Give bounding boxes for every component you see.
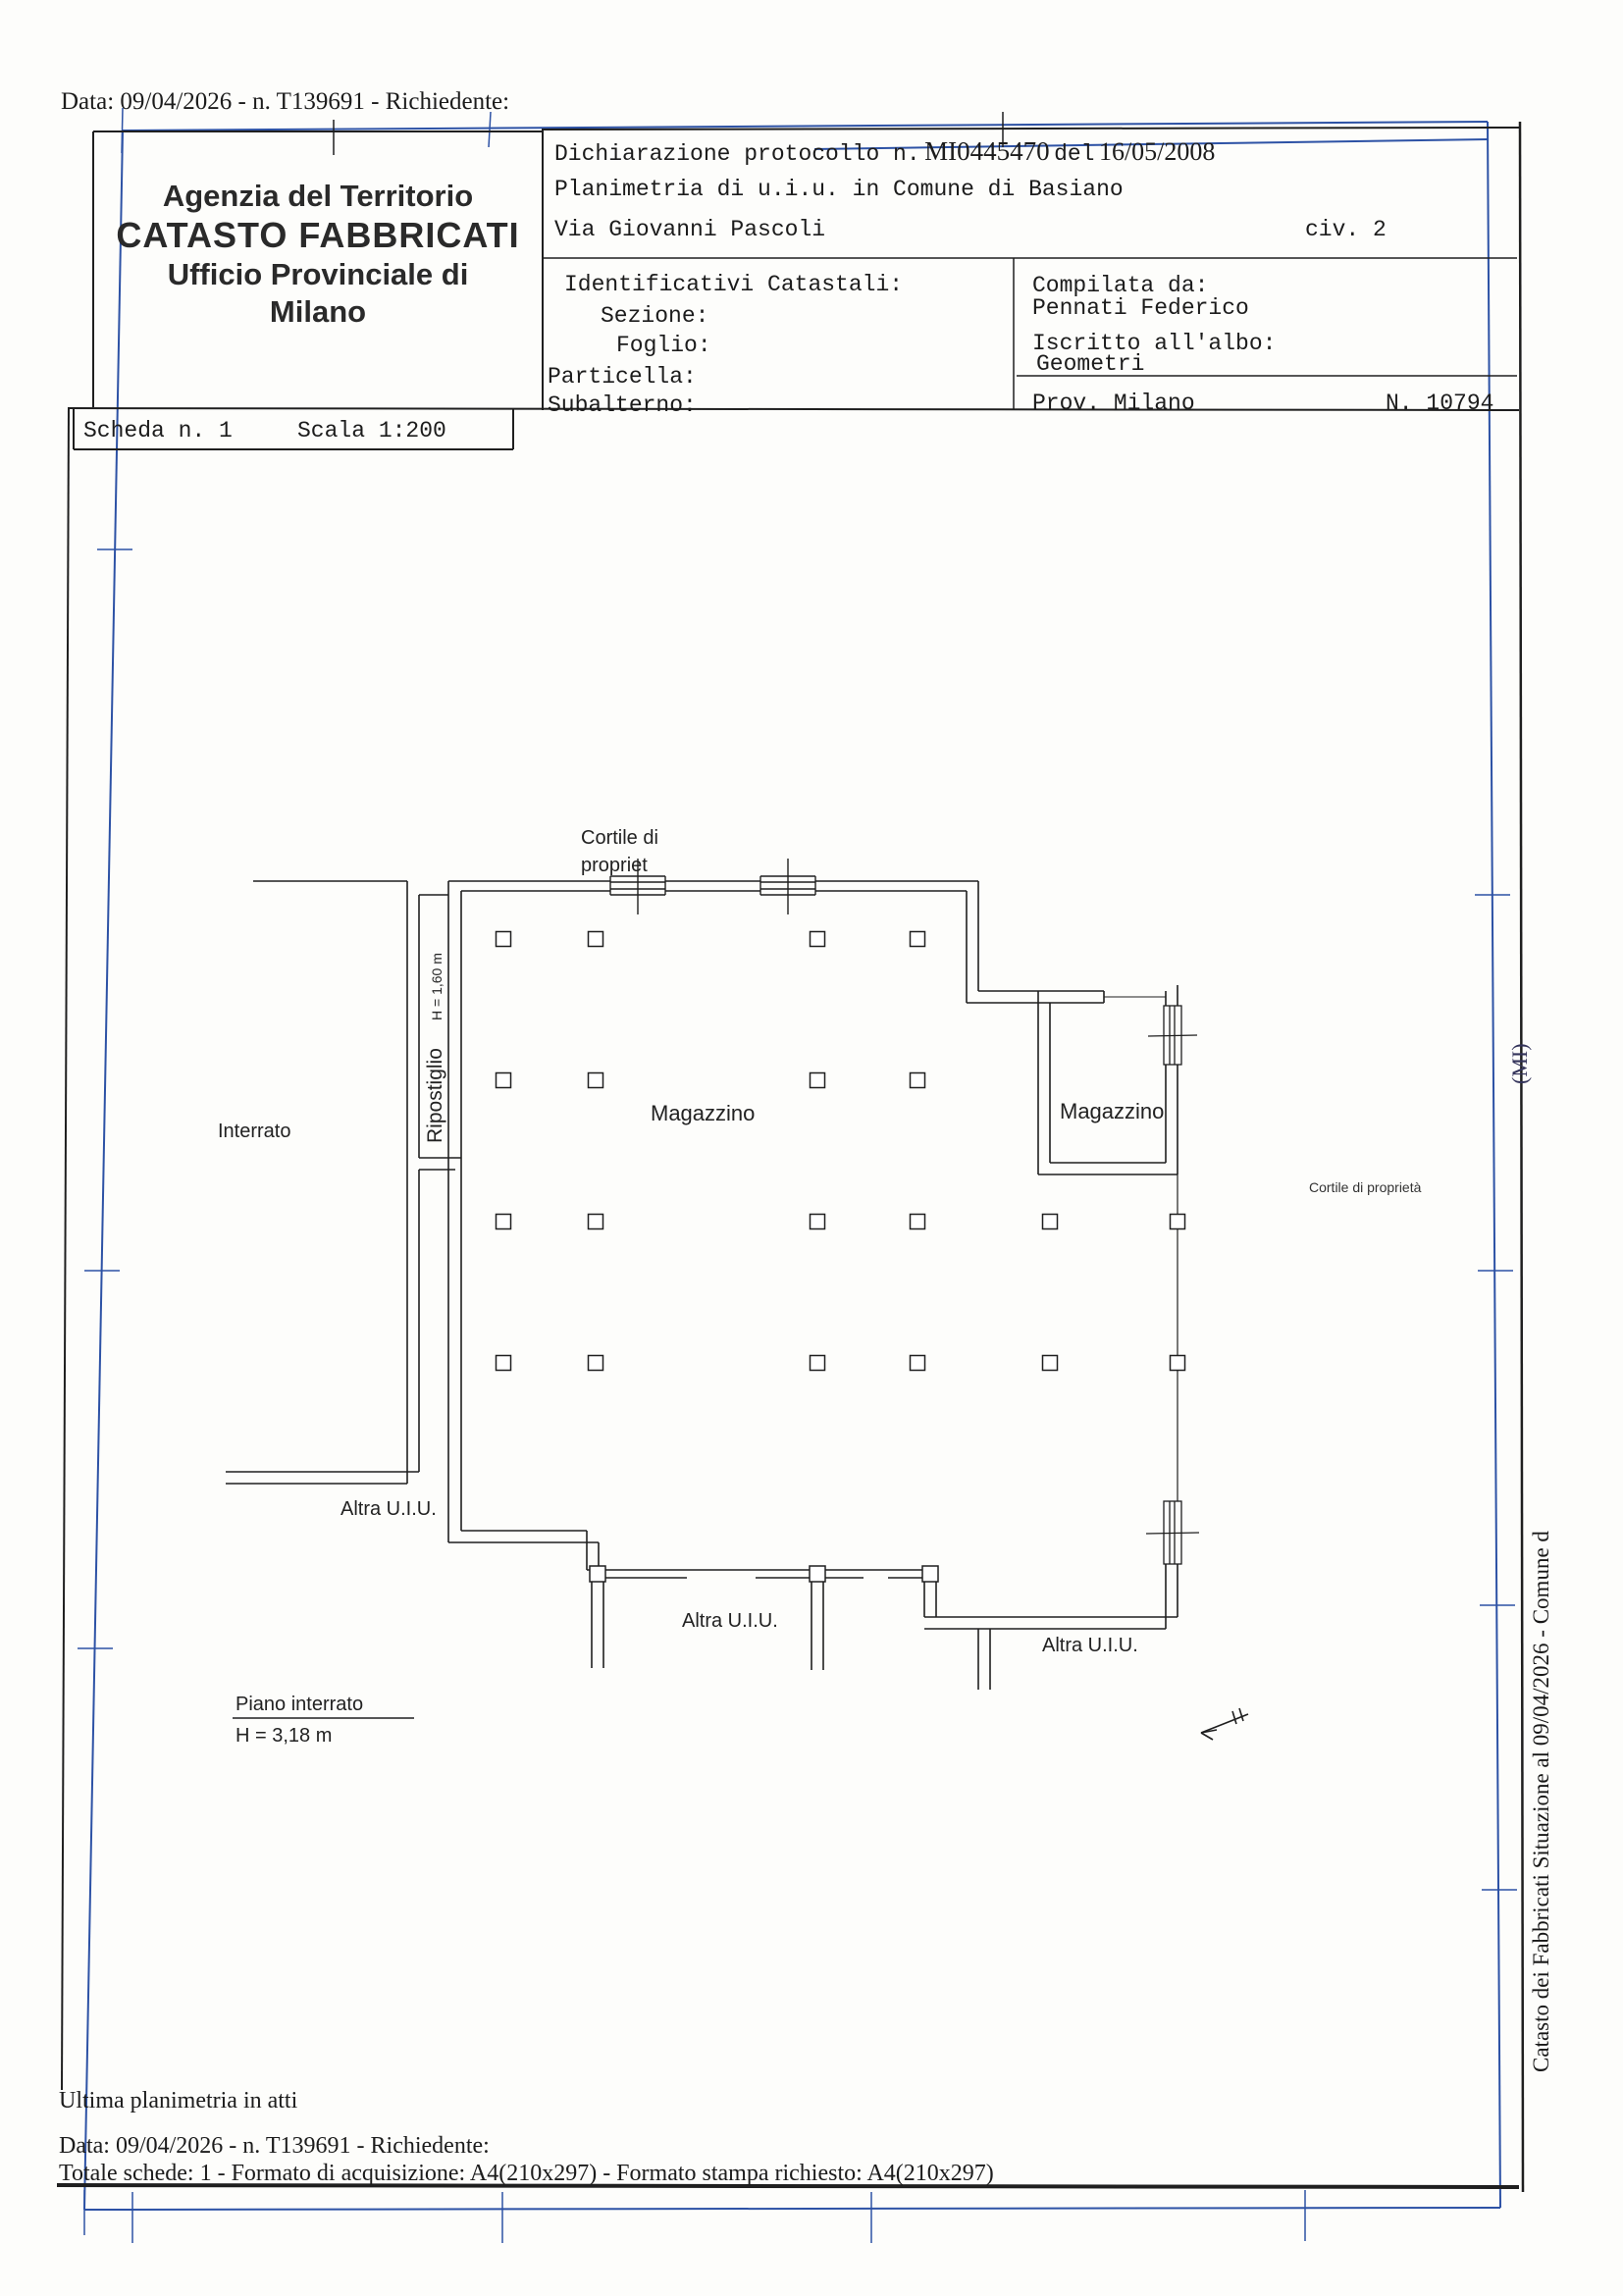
foglio-label: Foglio: xyxy=(616,333,711,358)
scheda-number: Scheda n. 1 xyxy=(83,418,233,444)
pillar-grid xyxy=(497,932,1185,1583)
identificativi-title: Identificativi Catastali: xyxy=(564,272,903,297)
provincial-office-label: Ufficio Provinciale di xyxy=(93,257,543,292)
altra-uiu-right-label: Altra U.I.U. xyxy=(1042,1635,1138,1657)
office-city: Milano xyxy=(93,294,543,330)
protocol-prefix: Dichiarazione protocollo n. xyxy=(554,141,920,167)
margin-vertical-text: Catasto dei Fabbricati Situazione al 09/… xyxy=(1529,1531,1554,2072)
albo-number: N. 10794 xyxy=(1386,391,1493,416)
black-frame xyxy=(57,112,1523,2192)
altra-uiu-left-label: Altra U.I.U. xyxy=(340,1498,437,1521)
footer-date-line: Data: 09/04/2026 - n. T139691 - Richiede… xyxy=(59,2133,490,2161)
albo-value: Geometri xyxy=(1036,351,1144,377)
cortile-top-label-line1: Cortile di xyxy=(581,827,658,850)
scala-value: Scala 1:200 xyxy=(297,418,446,444)
protocol-date: 16/05/2008 xyxy=(1099,137,1215,166)
catasto-title: CATASTO FABBRICATI xyxy=(93,215,543,255)
piano-height-label: H = 3,18 m xyxy=(236,1725,332,1748)
planimetria-line: Planimetria di u.i.u. in Comune di Basia… xyxy=(554,177,1124,202)
piano-interrato-label: Piano interrato xyxy=(236,1694,363,1716)
agency-name: Agenzia del Territorio xyxy=(93,179,543,214)
request-date-line: Data: 09/04/2026 - n. T139691 - Richiede… xyxy=(61,88,509,117)
cortile-right-label: Cortile di proprietà xyxy=(1309,1179,1421,1195)
footer-ultima-line: Ultima planimetria in atti xyxy=(59,2088,297,2115)
north-arrow-icon xyxy=(1201,1708,1248,1740)
scan-linework xyxy=(0,0,1623,2296)
subalterno-label: Subalterno: xyxy=(548,392,697,418)
protocol-del: del xyxy=(1054,141,1094,167)
civic-number: civ. 2 xyxy=(1305,217,1387,242)
particella-label: Particella: xyxy=(548,364,697,390)
blue-registration-ticks xyxy=(78,108,1517,2243)
ripostiglio-height-label: H = 1,60 m xyxy=(429,953,445,1020)
compiler-name: Pennati Federico xyxy=(1032,295,1249,321)
cadastral-sheet-page: Data: 09/04/2026 - n. T139691 - Richiede… xyxy=(0,0,1623,2296)
sezione-label: Sezione: xyxy=(601,303,708,329)
floorplan-walls xyxy=(226,881,1178,1718)
window-symbols xyxy=(610,859,1199,1564)
margin-vertical-fragment: (MI) xyxy=(1507,1043,1532,1084)
protocol-line: Dichiarazione protocollo n. MI0445470 de… xyxy=(554,136,1215,167)
interrato-label: Interrato xyxy=(218,1121,290,1143)
altra-uiu-center-label: Altra U.I.U. xyxy=(682,1610,778,1633)
street-line: Via Giovanni Pascoli xyxy=(554,217,825,242)
ripostiglio-label: Ripostiglio xyxy=(424,1048,447,1143)
protocol-number: MI0445470 xyxy=(924,136,1050,166)
prov-label: Prov. Milano xyxy=(1032,391,1195,416)
cortile-top-label-line2: propriet xyxy=(581,855,648,877)
footer-totale-line: Totale schede: 1 - Formato di acquisizio… xyxy=(59,2161,994,2188)
magazzino-small-label: Magazzino xyxy=(1060,1099,1164,1123)
magazzino-main-label: Magazzino xyxy=(651,1101,755,1125)
